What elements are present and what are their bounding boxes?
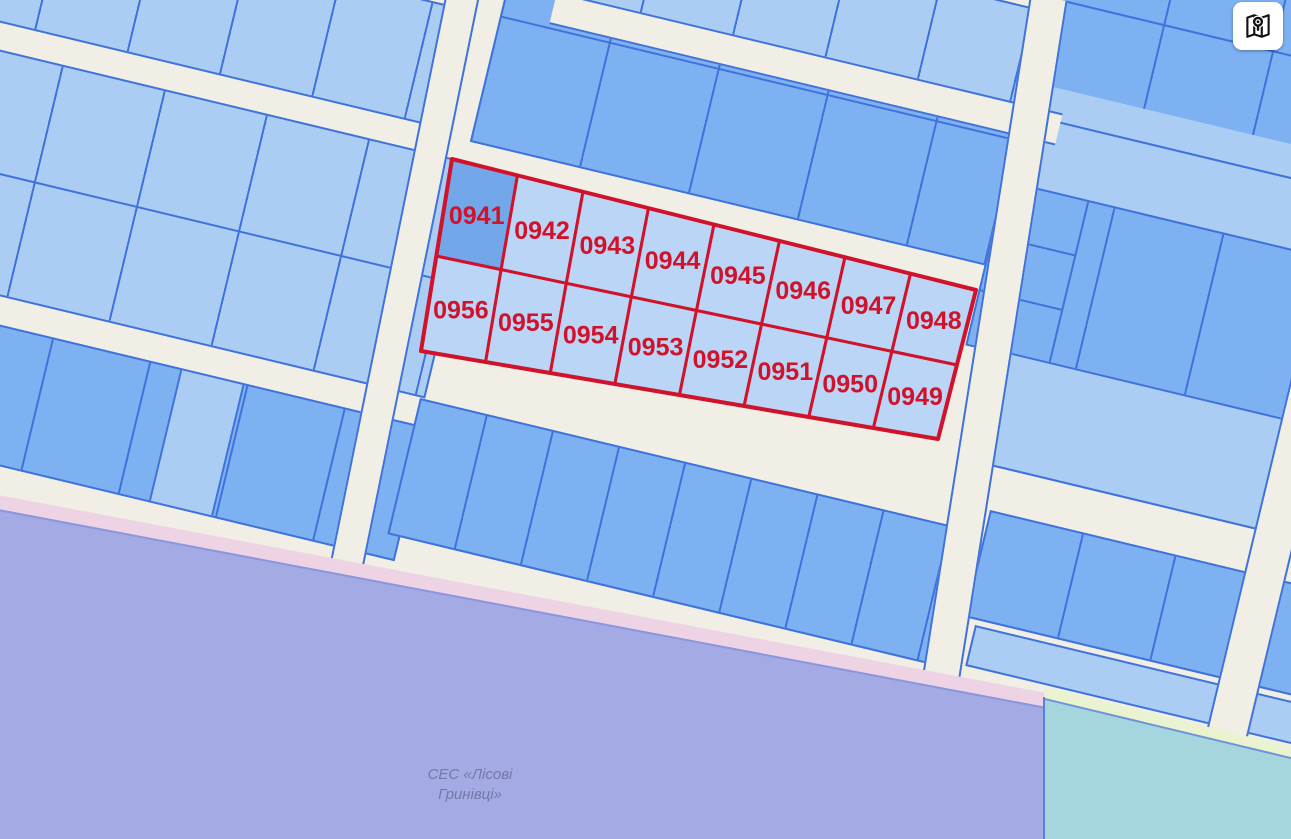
parcel-light-cell[interactable] xyxy=(149,370,244,516)
map-layers-button[interactable] xyxy=(1233,2,1283,50)
map-location-icon xyxy=(1243,11,1273,41)
area-label-line1: СЕС «Лісові xyxy=(428,766,513,783)
area-label: СЕС «Лісові Гринівці» xyxy=(385,765,555,806)
area-label-line2: Гринівці» xyxy=(438,786,502,803)
parcel-row-divider xyxy=(0,157,451,283)
cadastral-map-canvas[interactable]: СЕС «Лісові Гринівці» 094109420943094409… xyxy=(0,0,1291,839)
zone-boundary-line xyxy=(1043,697,1045,839)
